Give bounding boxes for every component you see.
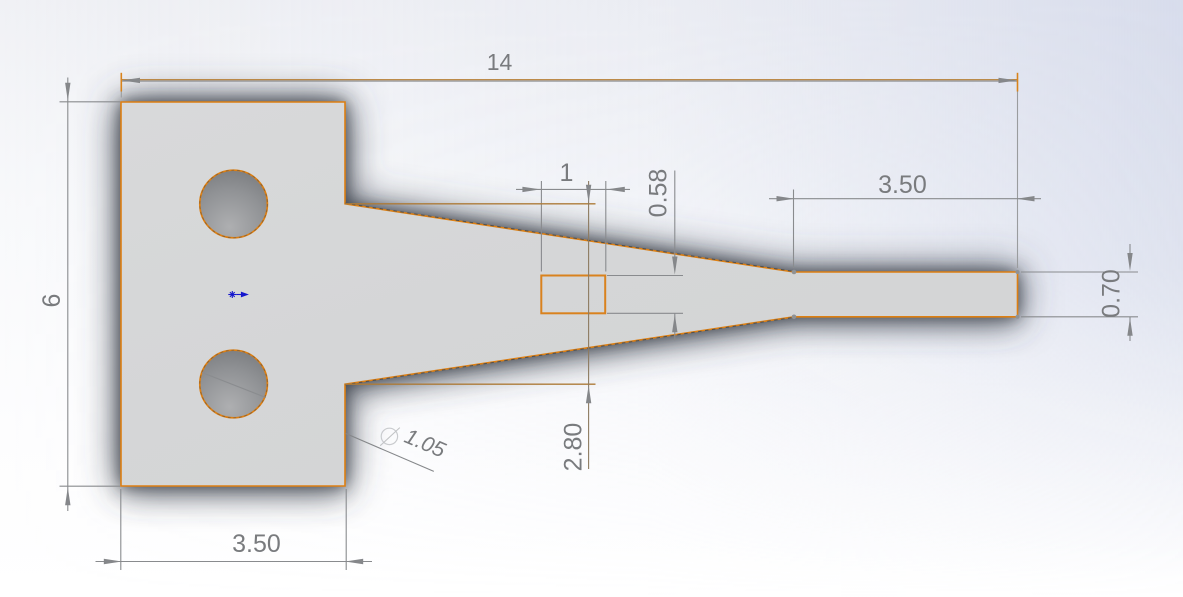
svg-text:3.50: 3.50 [878,171,927,199]
svg-text:3.50: 3.50 [232,530,281,558]
svg-text:1: 1 [560,159,574,187]
svg-text:2.80: 2.80 [560,423,588,472]
svg-text:0.58: 0.58 [645,169,673,218]
svg-text:14: 14 [487,49,513,75]
svg-text:6: 6 [38,294,66,308]
svg-text:0.70: 0.70 [1098,269,1126,318]
